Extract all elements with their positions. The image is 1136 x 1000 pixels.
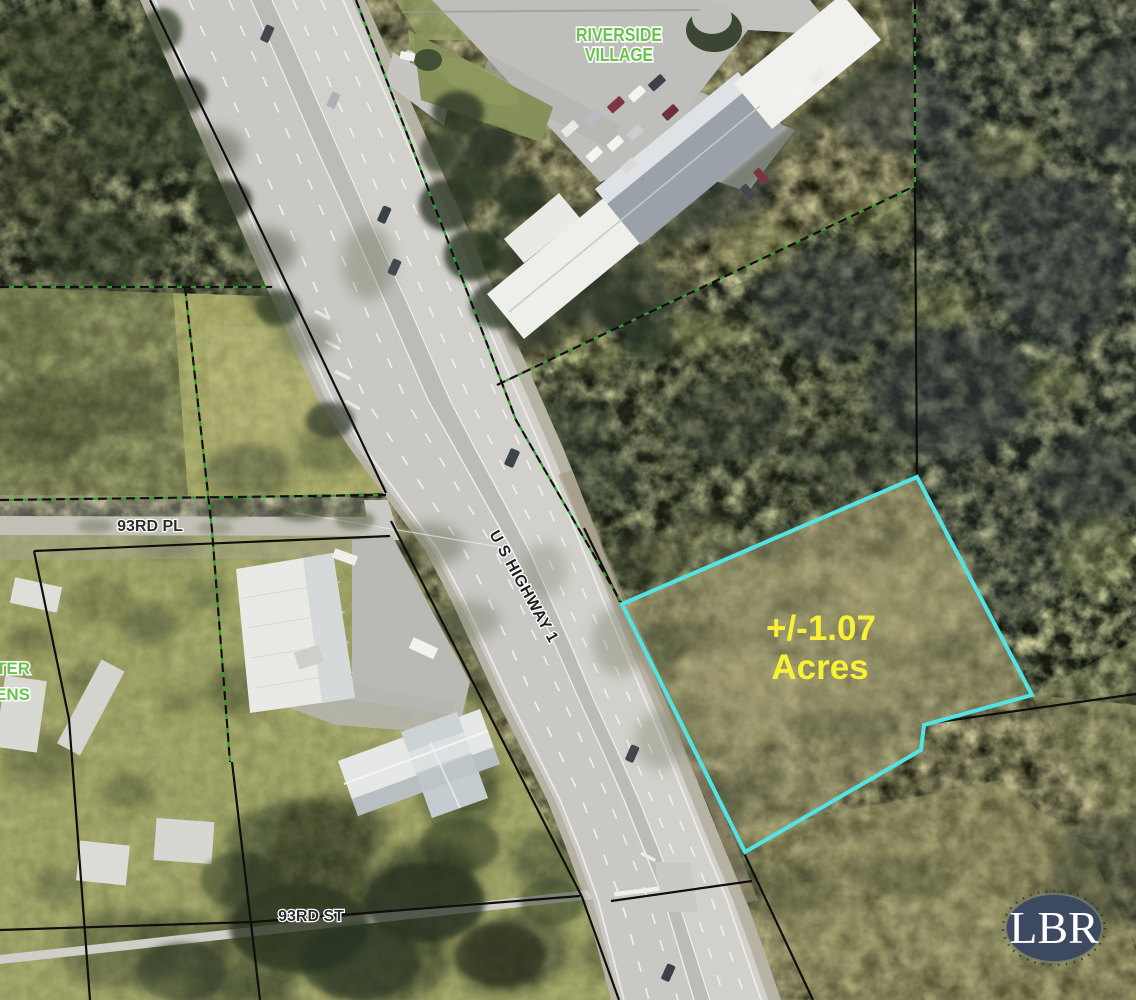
svg-text:Acres: Acres xyxy=(771,648,868,687)
svg-text:93RD ST: 93RD ST xyxy=(278,908,344,925)
svg-text:+/-1.07: +/-1.07 xyxy=(766,609,876,648)
svg-text:RIVERSIDE: RIVERSIDE xyxy=(576,25,662,45)
svg-text:TER: TER xyxy=(0,659,30,678)
svg-text:93RD PL: 93RD PL xyxy=(117,518,183,535)
svg-text:VILLAGE: VILLAGE xyxy=(585,45,653,65)
svg-text:ENS: ENS xyxy=(0,685,30,704)
svg-text:LBR: LBR xyxy=(1009,902,1099,953)
